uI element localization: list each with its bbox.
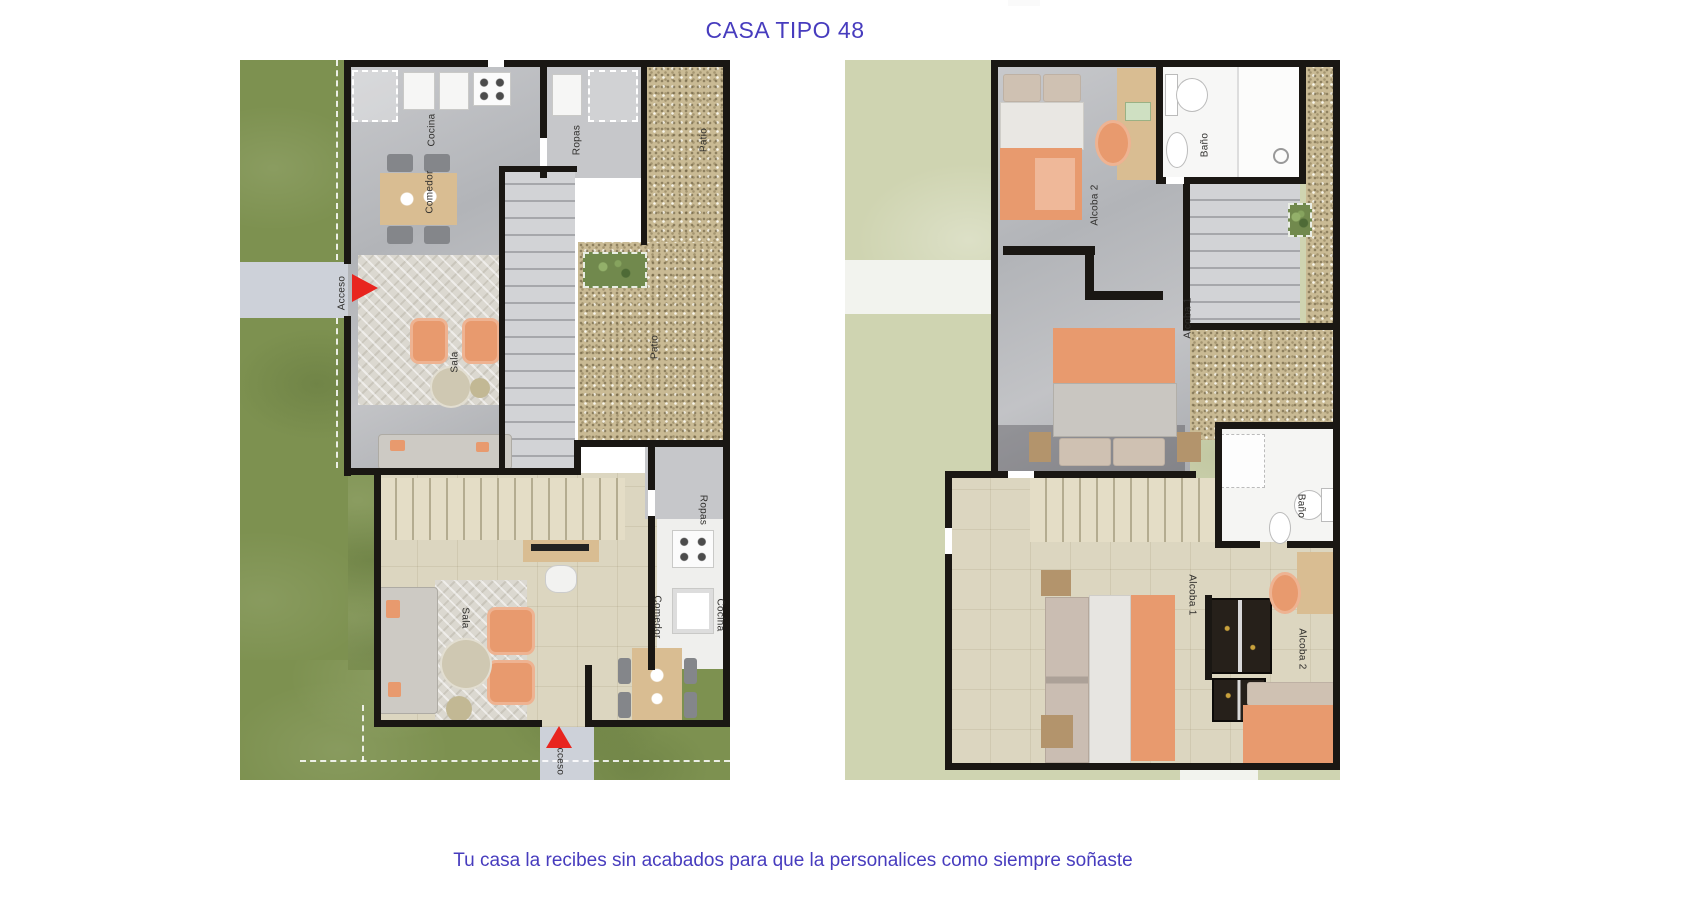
wall (1215, 541, 1260, 548)
wall (574, 440, 581, 475)
dining-table (632, 648, 682, 726)
nightstand (1177, 432, 1201, 462)
sofa-pillow (388, 682, 401, 697)
bed-pillow (1059, 438, 1111, 466)
side-table (446, 696, 472, 722)
lot-boundary-dashed (362, 705, 364, 762)
room-label-cocina: Cocina (427, 114, 438, 147)
fridge-space (352, 70, 398, 122)
door-opening (540, 138, 547, 166)
coffee-table (440, 638, 492, 690)
dining-chair (387, 226, 413, 244)
second-floor-plan: Alcoba 2 Baño Alcoba 1 Alcoba 1 Baño Alc… (845, 60, 1340, 780)
side-table (470, 378, 490, 398)
access-arrow-icon (352, 274, 378, 302)
wall (991, 60, 1340, 67)
armchair (410, 318, 448, 364)
armchair (462, 318, 500, 364)
room-label-patio: Patio (699, 128, 710, 152)
door-opening (1166, 177, 1184, 184)
door-opening (1008, 471, 1034, 478)
wardrobe (1208, 598, 1272, 674)
lot-boundary-dashed (300, 760, 730, 762)
room-label-patio: Patio (650, 335, 661, 359)
dining-chair (618, 658, 631, 684)
door-opening (488, 60, 504, 67)
bench (1041, 715, 1073, 748)
shower-stall (1221, 434, 1265, 488)
wall (1156, 60, 1163, 184)
floor-laundry-bottom (645, 447, 730, 519)
room-label-alcoba2: Alcoba 2 (1297, 628, 1308, 669)
closet-outline (1003, 246, 1095, 255)
bed-sheet (1089, 595, 1131, 765)
closet-outline (1085, 291, 1163, 300)
wall (374, 474, 381, 727)
wall (344, 316, 351, 476)
stove-top (473, 72, 511, 106)
first-floor-plan: Cocina Comedor Ropas Patio Patio Sala Ac… (240, 60, 730, 780)
access-arrow-icon (546, 726, 572, 748)
patio-top (647, 60, 730, 242)
bed-pillow (1043, 74, 1081, 102)
bed-throw (1035, 158, 1075, 210)
armchair (487, 607, 535, 655)
wall (1205, 595, 1212, 680)
kitchen-counter (439, 72, 469, 110)
access-walkway-left (240, 262, 352, 318)
bed-blanket (1131, 595, 1175, 761)
dining-chair (387, 154, 413, 172)
walkway-left (845, 260, 993, 314)
bathroom-sink (1269, 512, 1291, 544)
dining-chair (684, 658, 697, 684)
wall (945, 763, 1340, 770)
wall (1299, 60, 1306, 184)
wall (344, 60, 730, 67)
wall (1215, 422, 1340, 429)
wall (1333, 60, 1340, 770)
bench (1041, 570, 1071, 596)
wall (499, 166, 505, 473)
page: CASA TIPO 48 (0, 0, 1701, 900)
desk-chair (1095, 120, 1131, 166)
wall (1287, 541, 1340, 548)
room-label-ropas: Ropas (572, 125, 583, 155)
bed-pillow (1113, 438, 1165, 466)
bed-pillow (1247, 682, 1335, 706)
shower-area (1237, 67, 1302, 177)
room-label-sala: Sala (450, 351, 461, 372)
access-label: Acceso (337, 276, 348, 311)
dining-chair (424, 226, 450, 244)
kitchen-sink (403, 72, 435, 110)
desk-chair (545, 565, 577, 593)
washer (552, 74, 582, 116)
wall (991, 60, 998, 478)
staircase-lower-unit (1030, 478, 1230, 542)
desk-chair (1269, 572, 1301, 614)
door-opening (945, 528, 952, 554)
staircase-upper-unit (505, 168, 575, 473)
patio-right (1306, 67, 1334, 323)
dining-chair (618, 692, 631, 718)
room-label-alcoba1: Alcoba 1 (1183, 297, 1194, 338)
staircase-lower-unit (380, 478, 625, 540)
lot-boundary-dashed (336, 60, 338, 260)
room-label-bano: Baño (1296, 494, 1307, 519)
kitchen-sink (672, 588, 714, 634)
laptop (1125, 102, 1151, 121)
room-label-bano: Baño (1200, 133, 1211, 158)
room-label-comedor: Comedor (652, 595, 663, 638)
stove-top (672, 530, 714, 568)
wall (592, 720, 730, 727)
bed-blanket (1243, 705, 1337, 765)
planter-box (1288, 203, 1312, 237)
armchair (487, 660, 535, 705)
sofa-pillow (386, 600, 400, 618)
top-edge-artifact (1008, 0, 1040, 6)
bed-sheet (1053, 383, 1177, 437)
nightstand (1029, 432, 1051, 462)
wall (945, 478, 952, 770)
bed-sheet (1000, 102, 1084, 150)
dining-table (380, 173, 457, 225)
wall (1183, 323, 1340, 330)
wall (585, 665, 592, 727)
bed-pillow (1003, 74, 1041, 102)
wall (641, 60, 647, 245)
room-label-ropas: Ropas (698, 495, 709, 525)
tv (531, 544, 589, 551)
appliance-space (588, 70, 638, 122)
staircase-upper-unit (1190, 184, 1300, 324)
wall (374, 720, 542, 727)
bathroom-sink (1166, 132, 1188, 168)
page-title: CASA TIPO 48 (706, 17, 865, 44)
lot-boundary-dashed (336, 318, 338, 468)
room-label-alcoba2: Alcoba 2 (1090, 184, 1101, 225)
toilet-bowl (1176, 78, 1208, 112)
door-opening (648, 490, 655, 516)
planter-box (583, 252, 647, 288)
room-label-sala: Sala (460, 607, 471, 628)
wall (344, 60, 351, 264)
page-caption: Tu casa la recibes sin acabados para que… (453, 850, 1132, 872)
shower-head (1273, 148, 1289, 164)
dining-chair (684, 692, 697, 718)
dining-chair (424, 154, 450, 172)
room-label-comedor: Comedor (425, 170, 436, 213)
sofa-pillow (390, 440, 405, 451)
room-label-alcoba1: Alcoba 1 (1187, 574, 1198, 615)
desk (1297, 552, 1337, 614)
room-label-cocina: Cocina (715, 599, 726, 632)
sofa-pillow (476, 442, 489, 452)
wall (499, 166, 577, 172)
wall (1215, 422, 1222, 548)
wall (348, 468, 580, 475)
bed-blanket (1053, 328, 1175, 383)
